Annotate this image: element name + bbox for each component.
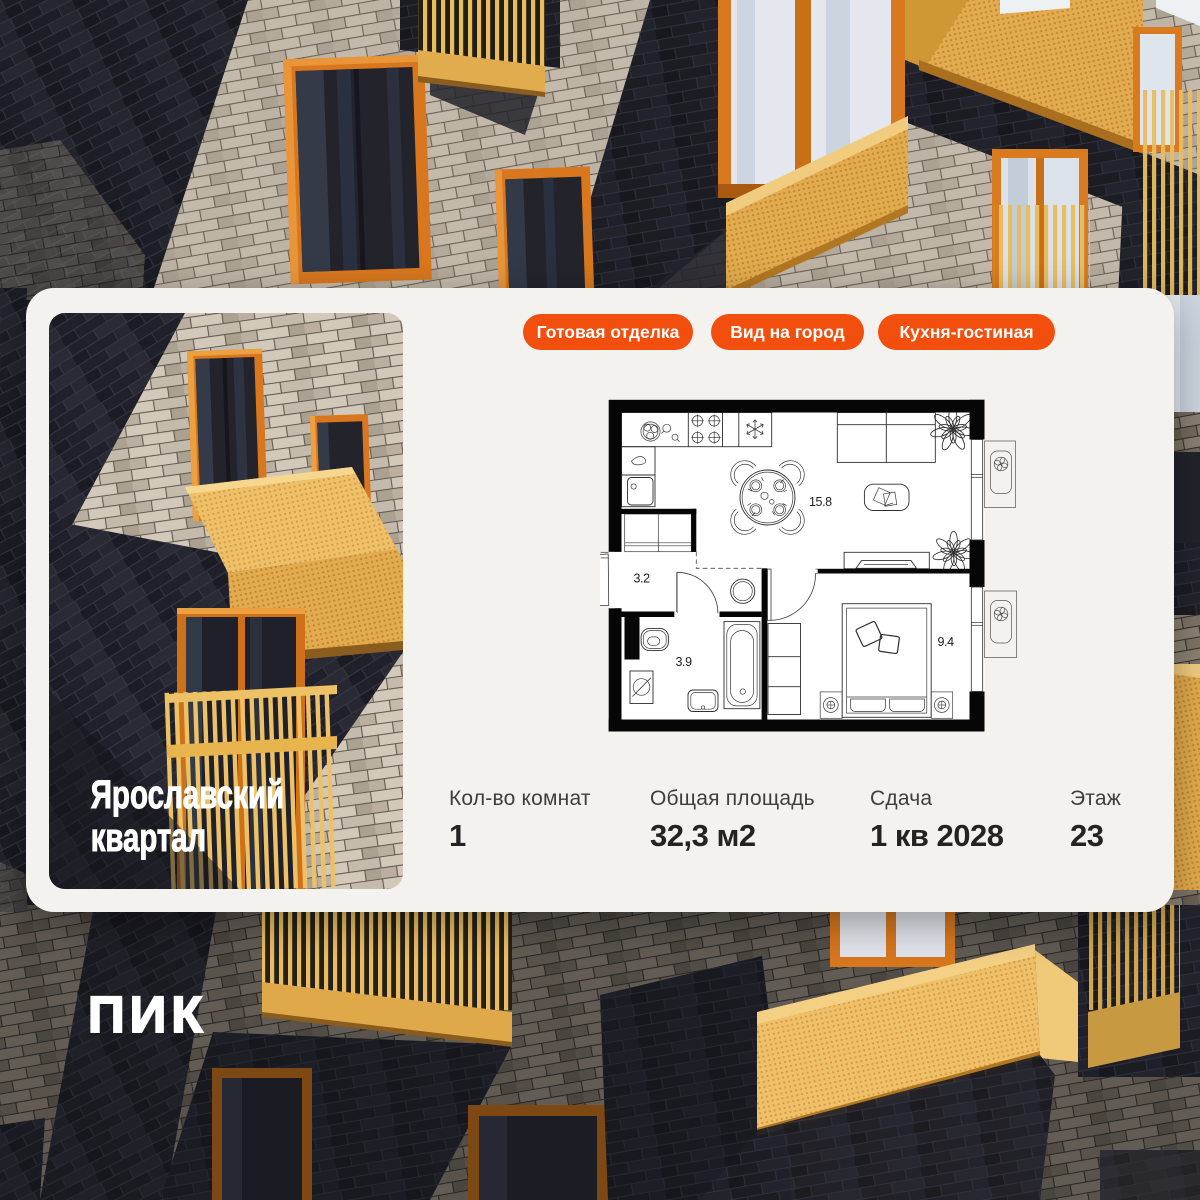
- svg-text:3.9: 3.9: [676, 655, 693, 669]
- svg-text:квартал: квартал: [91, 816, 207, 860]
- svg-text:3.2: 3.2: [634, 572, 651, 586]
- svg-text:15.8: 15.8: [809, 495, 832, 509]
- svg-text:9.4: 9.4: [938, 635, 955, 649]
- svg-text:Ярославский: Ярославский: [91, 773, 285, 817]
